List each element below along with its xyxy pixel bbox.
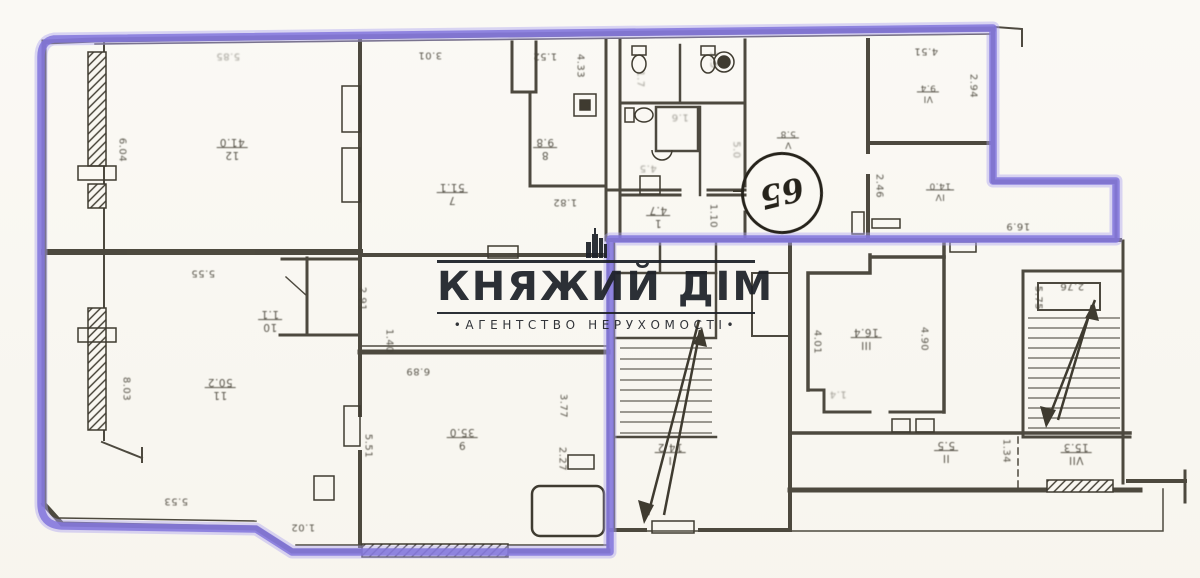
floor-plan-scan: 1241.0751.189.8101.11150.2935.014.7V5.8V…	[0, 0, 1200, 578]
watermark-title: КНЯЖИЙ ДІМ	[437, 263, 755, 312]
watermark: КНЯЖИЙ ДІМ •АГЕНТСТВО НЕРУХОМОСТІ•	[437, 228, 755, 332]
watermark-subtitle: •АГЕНТСТВО НЕРУХОМОСТІ•	[437, 314, 755, 332]
building-icon	[582, 228, 610, 258]
circled-number: 65	[756, 169, 808, 217]
